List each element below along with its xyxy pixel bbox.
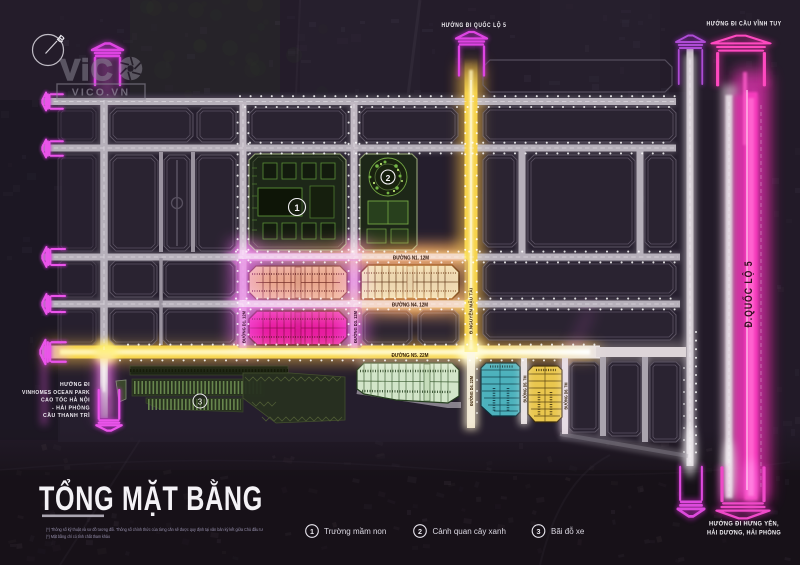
svg-text:HƯỚNG ĐI: HƯỚNG ĐI bbox=[60, 380, 90, 388]
svg-text:2: 2 bbox=[418, 527, 422, 536]
svg-text:3: 3 bbox=[198, 398, 203, 407]
svg-text:ĐƯỜNG D4. 22M: ĐƯỜNG D4. 22M bbox=[469, 376, 474, 406]
svg-text:- HẢI PHÒNG: - HẢI PHÒNG bbox=[52, 403, 90, 411]
svg-text:(*) Thông số kỹ thuật và sơ đồ: (*) Thông số kỹ thuật và sơ đồ tương đối… bbox=[46, 527, 263, 532]
svg-text:Trường mầm non: Trường mầm non bbox=[324, 527, 386, 536]
svg-text:1: 1 bbox=[310, 527, 314, 536]
svg-text:HẢI DƯƠNG, HẢI PHÒNG: HẢI DƯƠNG, HẢI PHÒNG bbox=[707, 528, 781, 537]
svg-text:Đ.QUỐC LỘ 5: Đ.QUỐC LỘ 5 bbox=[741, 261, 755, 328]
svg-text:Đ.NGUYỄN MẬU TÀI: Đ.NGUYỄN MẬU TÀI bbox=[468, 288, 474, 334]
svg-text:Bãi đỗ xe: Bãi đỗ xe bbox=[551, 527, 585, 536]
svg-text:(*) Mặt bằng chỉ có tính chất: (*) Mặt bằng chỉ có tính chất tham khảo bbox=[46, 534, 111, 539]
svg-text:CAO TỐC HÀ NỘI: CAO TỐC HÀ NỘI bbox=[41, 396, 90, 404]
svg-text:3: 3 bbox=[537, 527, 541, 536]
svg-text:ĐƯỜNG N4. 12M: ĐƯỜNG N4. 12M bbox=[392, 301, 428, 309]
svg-text:ViC: ViC bbox=[60, 54, 114, 87]
svg-text:Cảnh quan cây xanh: Cảnh quan cây xanh bbox=[433, 527, 506, 536]
svg-text:TỔNG MẶT BẰNG: TỔNG MẶT BẰNG bbox=[39, 480, 263, 518]
svg-text:VINHOMES OCEAN PARK: VINHOMES OCEAN PARK bbox=[22, 390, 90, 396]
svg-text:CẦU THANH TRÌ: CẦU THANH TRÌ bbox=[43, 411, 90, 419]
svg-text:ĐƯỜNG N5. 22M: ĐƯỜNG N5. 22M bbox=[392, 351, 429, 359]
svg-text:1: 1 bbox=[294, 203, 300, 214]
svg-text:ĐƯỜNG N1. 12M: ĐƯỜNG N1. 12M bbox=[393, 254, 429, 262]
svg-text:ĐƯỜNG D6. 7M: ĐƯỜNG D6. 7M bbox=[564, 382, 569, 409]
svg-text:VICO.VN: VICO.VN bbox=[72, 87, 131, 99]
svg-text:HƯỚNG ĐI HƯNG YÊN,: HƯỚNG ĐI HƯNG YÊN, bbox=[709, 519, 779, 528]
svg-text:ĐƯỜNG D5. 7M: ĐƯỜNG D5. 7M bbox=[523, 375, 528, 402]
svg-text:2: 2 bbox=[386, 173, 391, 183]
